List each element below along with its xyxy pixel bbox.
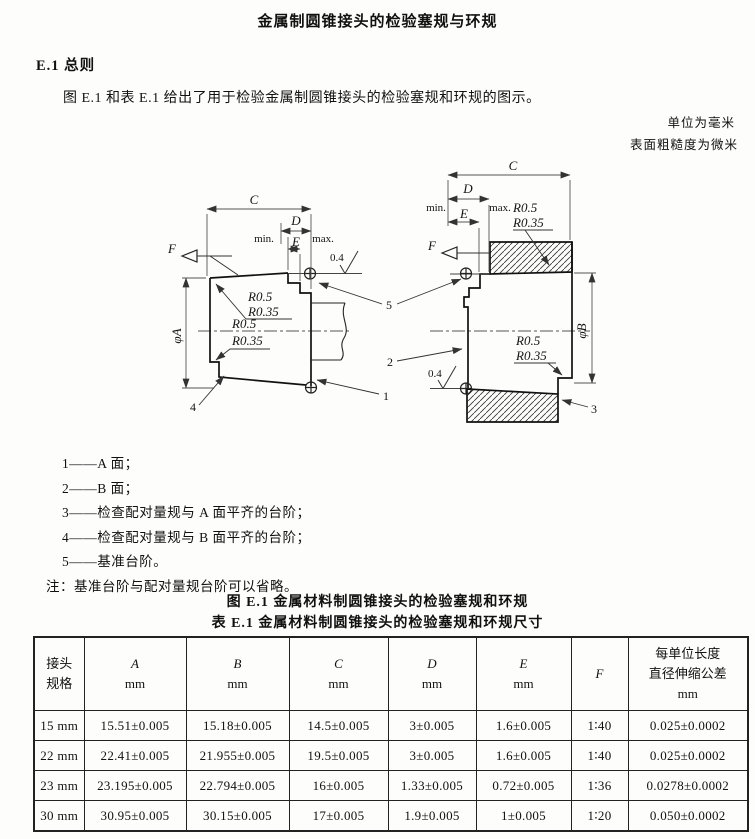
taper-label-f: F <box>427 238 437 253</box>
cell-a: 30.95±0.005 <box>84 801 186 832</box>
roughness-value: 0.4 <box>428 368 442 380</box>
cell-e: 1.6±0.005 <box>476 741 571 771</box>
min-label: min. <box>426 202 446 214</box>
svg-text:R0.35: R0.35 <box>515 348 547 363</box>
cell-e: 0.72±0.005 <box>476 771 571 801</box>
dim-label-phi-a: φA <box>169 328 184 343</box>
cell-tolerance: 0.050±0.0002 <box>628 801 748 832</box>
max-label: max. <box>489 202 511 214</box>
legend-item-1: 1——A 面； <box>46 452 311 477</box>
dim-label-e: E <box>459 206 468 221</box>
cell-a: 23.195±0.005 <box>84 771 186 801</box>
cell-d: 3±0.005 <box>388 741 476 771</box>
figure-e1-drawing: C D min. max. E 0.4 F <box>0 155 755 451</box>
legend-item-2: 2——B 面； <box>46 477 311 502</box>
cell-spec: 30 mm <box>34 801 84 832</box>
col-header-a: Amm <box>84 637 186 711</box>
legend-item-5: 5——基准台阶。 <box>46 550 311 575</box>
cell-e: 1±0.005 <box>476 801 571 832</box>
callout-5: 5 <box>386 298 392 312</box>
taper-arrow-icon <box>442 247 490 259</box>
leader-5-right <box>397 279 461 304</box>
cell-b: 22.794±0.005 <box>186 771 289 801</box>
figure-caption: 图 E.1 金属材料制圆锥接头的检验塞规和环规 <box>0 591 755 611</box>
legend-item-4: 4——检查配对量规与 B 面平齐的台阶； <box>46 526 311 551</box>
cell-spec: 22 mm <box>34 741 84 771</box>
col-header-e: Emm <box>476 637 571 711</box>
svg-text:R0.35: R0.35 <box>231 333 263 348</box>
leader-1 <box>317 380 379 394</box>
col-header-spec: 接头 规格 <box>34 637 84 711</box>
dim-label-phi-b: φB <box>574 323 589 338</box>
radius-callout-lower: R0.5 R0.35 <box>216 316 270 360</box>
cell-d: 1.33±0.005 <box>388 771 476 801</box>
table-row: 15 mm 15.51±0.005 15.18±0.005 14.5±0.005… <box>34 711 748 741</box>
dimension-table: 接头 规格 Amm Bmm Cmm Dmm Emm F 每单位长度 直径伸缩公差… <box>33 636 749 832</box>
cell-f: 1∶36 <box>571 771 628 801</box>
cell-a: 15.51±0.005 <box>84 711 186 741</box>
min-label: min. <box>254 233 274 245</box>
roughness-value: 0.4 <box>330 252 344 264</box>
section-heading: E.1 总则 <box>36 54 95 75</box>
callout-2: 2 <box>387 355 393 369</box>
cell-c: 19.5±0.005 <box>289 741 388 771</box>
cell-e: 1.6±0.005 <box>476 711 571 741</box>
callout-1: 1 <box>383 389 389 403</box>
cell-tolerance: 0.025±0.0002 <box>628 741 748 771</box>
ring-section-upper <box>490 242 572 274</box>
dim-label-d: D <box>290 213 301 228</box>
ring-gauge-figure: C D min. max. E F φB <box>426 158 597 422</box>
intro-paragraph: 图 E.1 和表 E.1 给出了用于检验金属制圆锥接头的检验塞规和环规的图示。 <box>63 87 541 107</box>
dim-label-e: E <box>291 234 300 249</box>
svg-text:R0.35: R0.35 <box>512 215 544 230</box>
cell-tolerance: 0.025±0.0002 <box>628 711 748 741</box>
dim-d-e-lines <box>448 199 489 272</box>
callout-4: 4 <box>190 400 196 414</box>
table-row: 22 mm 22.41±0.005 21.955±0.005 19.5±0.00… <box>34 741 748 771</box>
figure-legend: 1——A 面； 2——B 面； 3——检查配对量规与 A 面平齐的台阶； 4——… <box>46 452 311 600</box>
page-title: 金属制圆锥接头的检验塞规与环规 <box>0 10 755 31</box>
cell-a: 22.41±0.005 <box>84 741 186 771</box>
unit-note-mm: 单位为毫米 <box>667 112 735 131</box>
dim-d-lines <box>281 223 311 281</box>
roughness-symbol: 0.4 <box>428 366 456 389</box>
ring-section-lower <box>467 389 558 422</box>
taper-arrow-icon <box>182 250 238 275</box>
cell-c: 17±0.005 <box>289 801 388 832</box>
cell-spec: 15 mm <box>34 711 84 741</box>
col-header-b: Bmm <box>186 637 289 711</box>
callout-3: 3 <box>591 402 597 416</box>
cell-tolerance: 0.0278±0.0002 <box>628 771 748 801</box>
svg-text:R0.5: R0.5 <box>231 316 257 331</box>
document-page: 金属制圆锥接头的检验塞规与环规 E.1 总则 图 E.1 和表 E.1 给出了用… <box>0 0 755 839</box>
table-caption: 表 E.1 金属材料制圆锥接头的检验塞规和环规尺寸 <box>0 612 755 632</box>
table-header-row: 接头 规格 Amm Bmm Cmm Dmm Emm F 每单位长度 直径伸缩公差… <box>34 637 748 711</box>
taper-label-f: F <box>167 241 177 256</box>
leader-4 <box>199 376 224 405</box>
dim-label-c: C <box>250 192 259 207</box>
cell-d: 3±0.005 <box>388 711 476 741</box>
unit-note-roughness: 表面粗糙度为微米 <box>630 134 738 153</box>
cell-c: 14.5±0.005 <box>289 711 388 741</box>
roughness-symbol: 0.4 <box>330 251 358 274</box>
col-header-tolerance: 每单位长度 直径伸缩公差 mm <box>628 637 748 711</box>
mating-shaft-stub <box>311 303 346 360</box>
table-row: 23 mm 23.195±0.005 22.794±0.005 16±0.005… <box>34 771 748 801</box>
dim-label-d: D <box>462 181 473 196</box>
svg-text:R0.5: R0.5 <box>512 200 538 215</box>
leader-2 <box>397 349 462 361</box>
radius-callout-lower: R0.5 R0.35 <box>514 333 562 375</box>
max-label: max. <box>312 233 334 245</box>
svg-text:R0.5: R0.5 <box>515 333 541 348</box>
cell-f: 1∶40 <box>571 711 628 741</box>
legend-item-3: 3——检查配对量规与 A 面平齐的台阶； <box>46 501 311 526</box>
cell-b: 21.955±0.005 <box>186 741 289 771</box>
cell-c: 16±0.005 <box>289 771 388 801</box>
cell-f: 1∶40 <box>571 741 628 771</box>
cell-b: 15.18±0.005 <box>186 711 289 741</box>
plug-gauge-figure: C D min. max. E 0.4 F <box>167 192 362 414</box>
svg-text:R0.5: R0.5 <box>247 289 273 304</box>
dim-label-c: C <box>509 158 518 173</box>
cell-f: 1∶20 <box>571 801 628 832</box>
leader-5-left <box>319 283 382 304</box>
cell-b: 30.15±0.005 <box>186 801 289 832</box>
radius-callout-upper: R0.5 R0.35 <box>216 284 292 319</box>
leader-3 <box>562 400 588 407</box>
cell-spec: 23 mm <box>34 771 84 801</box>
col-header-c: Cmm <box>289 637 388 711</box>
col-header-f: F <box>571 637 628 711</box>
cell-d: 1.9±0.005 <box>388 801 476 832</box>
table-row: 30 mm 30.95±0.005 30.15±0.005 17±0.005 1… <box>34 801 748 832</box>
col-header-d: Dmm <box>388 637 476 711</box>
